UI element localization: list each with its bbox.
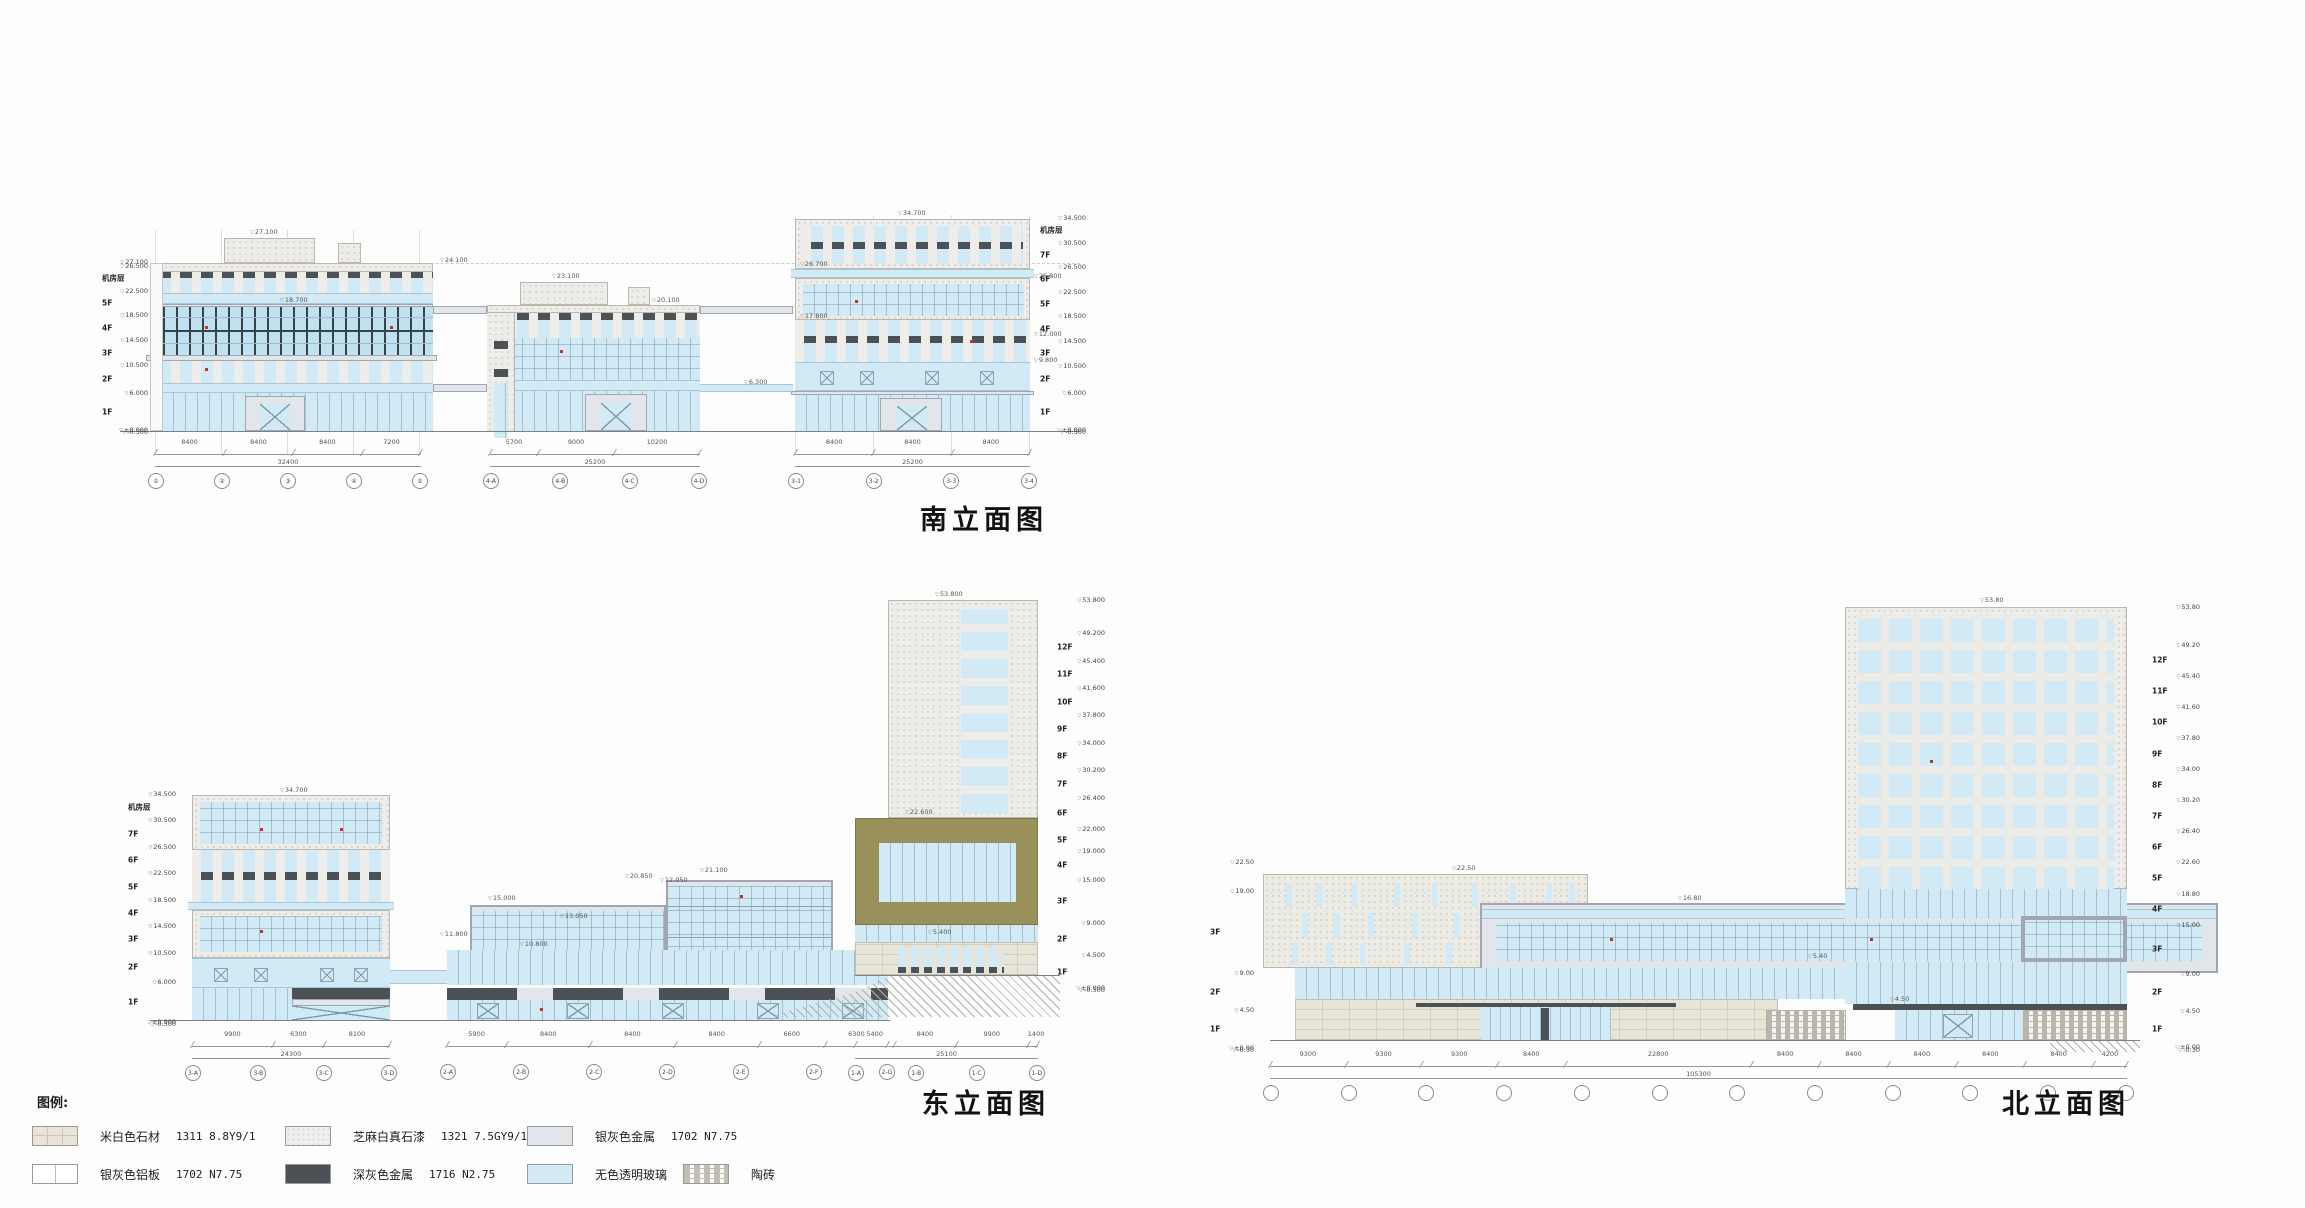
dim-segment: 1400 (1028, 1038, 1038, 1046)
level-annotation: 13.050 (560, 912, 588, 920)
north-tower-window-grid (1858, 614, 2114, 890)
material-name: 银灰色金属 (595, 1128, 655, 1145)
level-annotation: 20.100 (652, 296, 680, 304)
material-swatch (683, 1164, 729, 1184)
south-blockB-upper-band (487, 320, 700, 338)
ruler-row: -0.300 (1055, 988, 1105, 990)
grid-bubble (1729, 1085, 1745, 1101)
ruler-row: 1F±0.000 (100, 393, 148, 430)
east-tower-feature-frame (855, 818, 1038, 925)
grid-bubble (1962, 1085, 1978, 1101)
ruler-row: 7F26.40 (2150, 800, 2200, 831)
red-marker (260, 930, 263, 933)
level-annotation: 23.100 (552, 272, 580, 280)
north-1F-base (1295, 999, 1778, 1040)
grid-bubble (1574, 1085, 1590, 1101)
south-blockA-2F-band (150, 361, 433, 383)
ground-line (150, 1020, 890, 1021)
dim-total: 24300 (192, 1050, 390, 1058)
east-midblock-2F-band (447, 950, 888, 985)
material-name: 米白色石材 (100, 1128, 160, 1145)
grid-bubble: 1-C (969, 1065, 985, 1081)
dim-total: 25100 (855, 1050, 1038, 1058)
material-code: 1702 N7.75 (176, 1168, 242, 1181)
south-blockA-roofbox (338, 243, 361, 263)
material-name: 银灰色铝板 (100, 1166, 160, 1183)
east-tower-feature-glass (879, 843, 1016, 902)
ruler-row: 1F±0.00 (2150, 1011, 2200, 1048)
ruler-row: -0.30 (1208, 1048, 1254, 1050)
grid-bubble: ⑤ (412, 473, 428, 489)
material-swatch (527, 1164, 573, 1184)
grid-bubble (1885, 1085, 1901, 1101)
dim-segment: 8400 (1819, 1058, 1887, 1066)
grid-bubble: ④ (346, 473, 362, 489)
ruler-row: 6F22.000 (1055, 798, 1105, 830)
level-annotation: 34.700 (280, 786, 308, 794)
ruler-row: 6F22.500 (126, 847, 176, 873)
north-tower-4F-band (1845, 889, 2127, 919)
south-blockA-entrance-portal (245, 396, 305, 431)
dim-segment: 4200 (2093, 1058, 2127, 1066)
ruler-row: 3F10.500 (1038, 341, 1086, 366)
legend-item: 无色透明玻璃 (527, 1164, 683, 1184)
legend-item: 芝麻白真石漆 1321 7.5GY9/1 (285, 1126, 527, 1146)
material-code: 1716 N2.75 (429, 1168, 495, 1181)
south-blockC-window-head-band (795, 336, 1030, 343)
red-marker (390, 326, 393, 329)
south-blockB-spandrel (487, 380, 700, 391)
ruler-row: 2F4.50 (2150, 974, 2200, 1011)
west-elevation: 53.80049.20012F45.40011F41.60010F37.8009… (1190, 0, 2305, 560)
level-annotation: 53.80 (1980, 596, 2003, 604)
level-annotation: 27.100 (250, 228, 278, 236)
south-blockA-parapet (150, 263, 433, 272)
south-blockA-curtain-wall (150, 307, 433, 355)
grid-bubble (1263, 1085, 1279, 1101)
ruler-row: 7F26.400 (1055, 770, 1105, 797)
red-marker (970, 340, 973, 343)
level-annotation: 26.700 (800, 260, 828, 268)
dim-segment: 6300 (273, 1038, 324, 1046)
ruler-row: 2F6.000 (1038, 366, 1086, 394)
level-annotation: 18.700 (280, 296, 308, 304)
material-swatch (285, 1164, 331, 1184)
south-blockB-window-head-band (487, 313, 700, 320)
dim-segment: 8400 (675, 1038, 759, 1046)
east-link-band (390, 970, 447, 984)
south-blockB-stone-pier (487, 313, 515, 431)
tower-ground-line (855, 975, 1060, 976)
east-tower-facade (888, 600, 1038, 818)
ruler-row: 12F45.40 (2150, 645, 2200, 676)
material-code: 1321 7.5GY9/1 (441, 1130, 527, 1143)
ruler-row: 4F14.500 (100, 315, 148, 340)
elevation-sheet: 27.100 24.100 23.100 20.100 18.700 34.70… (0, 0, 2305, 1208)
dim-segment: 8400 (1751, 1058, 1819, 1066)
link-bridge (700, 306, 793, 314)
south-blockA-spandrel (150, 383, 433, 393)
material-swatch (32, 1164, 78, 1184)
ruler-row: 机房层22.500 (100, 266, 148, 291)
material-name: 无色透明玻璃 (595, 1166, 667, 1183)
grid-bubble: ① (148, 473, 164, 489)
dim-segment: 8400 (224, 446, 293, 454)
south-blockA-roofbox (224, 238, 315, 263)
ruler-row: 2F4.500 (1055, 923, 1105, 955)
dim-segment: 9900 (192, 1038, 273, 1046)
ruler-row: 3F9.00 (2150, 925, 2200, 974)
red-marker (855, 300, 858, 303)
material-swatch (527, 1126, 573, 1146)
level-annotation: 22.50 (1452, 864, 1475, 872)
ruler-row: 机房层30.500 (1038, 218, 1086, 243)
ruler-row: 6F22.60 (2150, 831, 2200, 862)
grid-bubble (1652, 1085, 1668, 1101)
ruler-row: -0.300 (126, 1022, 176, 1024)
level-annotation: 10.800 (520, 940, 548, 948)
north-title: 北立面图 (2002, 1082, 2130, 1121)
east-leftblock-1F-right (292, 988, 390, 1020)
east-midblock-1F-header (447, 988, 888, 1000)
ruler-row: 4F15.00 (2150, 894, 2200, 925)
dim-segment: 8400 (155, 446, 224, 454)
east-dim-group-1: 990063008100 24300 3-A3-B3-C3-D (192, 1038, 390, 1081)
ruler-row: 4F14.500 (126, 900, 176, 926)
grid-bubble: 3-4 (1021, 473, 1037, 489)
north-tao-brick-panel (2023, 1010, 2127, 1040)
red-marker (340, 828, 343, 831)
grid-bubble: 2-F (806, 1064, 822, 1080)
link-bridge (433, 384, 487, 392)
south-blockC-mid-frame (795, 278, 1030, 320)
ruler-row: 9F34.00 (2150, 738, 2200, 769)
grid-bubble: 3-1 (788, 473, 804, 489)
ruler-row: 11F41.60 (2150, 676, 2200, 707)
ruler-row: 2F4.50 (1208, 973, 1254, 1010)
south-blockB-entrance-portal (585, 394, 647, 431)
south-blockB-glass-field (487, 338, 700, 380)
ruler-row: 2F6.000 (126, 953, 176, 983)
grid-bubble: 4-D (691, 473, 707, 489)
dim-segment: 9300 (1270, 1058, 1346, 1066)
north-right-ruler: 53.8049.2012F45.4011F41.6010F37.809F34.0… (2150, 607, 2200, 1050)
grid-bubble: 4-A (483, 473, 499, 489)
north-dim-group: 9300930093008400228008400840084008400840… (1270, 1058, 2127, 1101)
ruler-row: 3F10.500 (126, 926, 176, 952)
ruler-row: 8F30.200 (1055, 743, 1105, 770)
ruler-row: 7F26.500 (1038, 243, 1086, 268)
grid-bubble: 3-C (316, 1065, 332, 1081)
south-dim-group-1: 8400840084007200 32400 ①②③④⑤ (155, 446, 421, 489)
level-annotation: 16.80 (1678, 894, 1701, 902)
entrance-door (601, 403, 631, 430)
ruler-row: 5F18.500 (100, 291, 148, 316)
south-blockC-top-frame (795, 219, 1030, 269)
dim-segment: 5700 (490, 446, 538, 454)
dim-segment: 9000 (538, 446, 614, 454)
dim-segment: 6600 (759, 1038, 825, 1046)
ruler-row: 1F±0.000 (1038, 393, 1086, 430)
south-right-ruler: 34.500机房层30.5007F26.5006F22.5005F18.5004… (1038, 218, 1086, 432)
south-blockC-2F-band (795, 362, 1030, 391)
red-marker (1870, 938, 1873, 941)
level-annotation: 22.600 (905, 808, 933, 816)
south-blockB-roofbox (520, 282, 608, 305)
south-blockB-parapet (487, 305, 700, 313)
south-dim-group-2: 5700900010200 25200 4-A4-B4-C4-D (490, 446, 700, 489)
grid-bubble: 2-E (733, 1064, 749, 1080)
dim-total: 105300 (1270, 1070, 2127, 1078)
grid-bubble: 2-D (659, 1064, 675, 1080)
ruler-row: 3F10.500 (100, 340, 148, 365)
material-swatch (285, 1126, 331, 1146)
dim-segment: 8400 (952, 446, 1030, 454)
dim-segment: 9300 (1346, 1058, 1422, 1066)
north-tower-entry-glass (1895, 1010, 2023, 1040)
ruler-row: 3F9.00 (1208, 891, 1254, 973)
material-name: 深灰色金属 (353, 1166, 413, 1183)
east-dim-group-2: 590084008400840066006300 2-A2-B2-C2-D2-E… (447, 1038, 888, 1080)
level-annotation: 17.800 (800, 312, 828, 320)
ruler-row: 9F34.000 (1055, 715, 1105, 742)
entrance-door (897, 406, 927, 430)
grid-bubble: 2-B (513, 1064, 529, 1080)
ruler-row: 1F±0.000 (126, 982, 176, 1022)
red-marker (540, 1008, 543, 1011)
legend-row-1: 米白色石材 1311 8.8Y9/1 芝麻白真石漆 1321 7.5GY9/1 … (32, 1126, 737, 1146)
grid-bubble: 1-B (908, 1065, 924, 1081)
dim-total: 32400 (155, 458, 421, 466)
grid-bubble: ② (214, 473, 230, 489)
dim-segment: 5400 (855, 1038, 894, 1046)
ruler-row: -0.300 (100, 430, 148, 432)
level-annotation: 4.50 (1890, 995, 1909, 1003)
east-leftblock-window-heads (192, 872, 390, 880)
red-marker (205, 368, 208, 371)
east-title: 东立面图 (922, 1082, 1050, 1121)
east-dim-group-3: 5400840099001400 25100 1-A1-B1-C1-D (855, 1038, 1038, 1081)
ruler-row: 10F37.800 (1055, 688, 1105, 715)
dim-segment: 7200 (362, 446, 421, 454)
legend-item: 米白色石材 1311 8.8Y9/1 (32, 1126, 285, 1146)
dim-segment: 8400 (1956, 1058, 2024, 1066)
level-annotation: 6.300 (744, 378, 767, 386)
ruler-row: -0.30 (2150, 1047, 2200, 1049)
legend-item: 陶砖 (683, 1164, 791, 1184)
level-annotation: 53.800 (935, 590, 963, 598)
level-annotation: 12.050 (660, 876, 688, 884)
north-tower-2F-band (1845, 962, 2127, 1004)
material-code: 1311 8.8Y9/1 (176, 1130, 255, 1143)
level-annotation: 15.000 (488, 894, 516, 902)
ruler-row: 19.00 (1208, 862, 1254, 891)
dim-segment: 8400 (894, 1038, 955, 1046)
east-leftblock-top-frame (192, 795, 390, 850)
east-tower-windows (961, 609, 1008, 813)
north-tao-brick-panel (1766, 1010, 1846, 1040)
grid-bubble: 4-B (552, 473, 568, 489)
ruler-row: 12F45.400 (1055, 633, 1105, 660)
dim-segment: 8400 (506, 1038, 590, 1046)
grid-bubble: 1-A (848, 1065, 864, 1081)
east-left-ruler: 34.500机房层30.5007F26.5006F22.5005F18.5004… (126, 794, 176, 1024)
ground-line (1270, 1040, 2140, 1041)
material-name: 陶砖 (751, 1166, 775, 1183)
east-elevation: 34.700 21.100 20.850 15.000 13.050 10.80… (0, 560, 1160, 1160)
grid-bubble: ③ (280, 473, 296, 489)
legend-item: 银灰色金属 1702 N7.75 (527, 1126, 737, 1146)
grid-bubble: 3-A (185, 1065, 201, 1081)
east-leftblock-2F-band (192, 958, 390, 988)
link-bridge (433, 306, 487, 314)
south-elevation: 27.100 24.100 23.100 20.100 18.700 34.70… (0, 0, 1100, 560)
level-annotation: 5.40 (1808, 952, 1827, 960)
material-swatch (32, 1126, 78, 1146)
north-elevation: 22.50 16.80 5.40 4.50 53.80 22.5019.003F… (1190, 560, 2305, 1160)
ruler-row: 1F±0.00 (1208, 1010, 1254, 1047)
dim-segment: 5900 (447, 1038, 506, 1046)
south-dim-group-3: 840084008400 25200 3-13-23-33-4 (795, 446, 1030, 489)
south-blockA-machine-band (150, 278, 433, 293)
ruler-row: 3F9.000 (1055, 880, 1105, 923)
level-annotation: 34.700 (898, 209, 926, 217)
legend-row-2: 银灰色铝板 1702 N7.75 深灰色金属 1716 N2.75 无色透明玻璃… (32, 1164, 791, 1184)
east-leftblock-storefront (192, 988, 292, 1020)
grid-bubble (1341, 1085, 1357, 1101)
grid-bubble (1418, 1085, 1434, 1101)
north-left-ruler: 22.5019.003F9.002F4.501F±0.00-0.30 (1208, 862, 1254, 1050)
ruler-row: 5F18.80 (2150, 862, 2200, 893)
level-annotation: 11.800 (440, 930, 468, 938)
grid-bubble: 2-A (440, 1064, 456, 1080)
level-annotation: 24.100 (440, 256, 468, 264)
level-annotation: 20.850 (625, 872, 653, 880)
material-code: 1702 N7.75 (671, 1130, 737, 1143)
dim-segment: 8400 (795, 446, 873, 454)
entrance-door (260, 404, 290, 430)
red-marker (1930, 760, 1933, 763)
ruler-row: 2F6.000 (100, 365, 148, 393)
dim-total: 25200 (795, 458, 1030, 466)
ruler-row: 10F37.80 (2150, 707, 2200, 738)
ground-line (120, 431, 1080, 432)
dim-segment: 8400 (2024, 1058, 2092, 1066)
south-blockC-entrance-portal (880, 398, 942, 431)
south-title: 南立面图 (920, 498, 1048, 537)
south-blockA-alum-corner (150, 263, 163, 431)
ruler-row: 5F18.500 (1038, 292, 1086, 317)
north-tower-facade (1845, 607, 2127, 889)
east-leftblock-ledge (188, 902, 394, 910)
dim-total: 25200 (490, 458, 700, 466)
legend-item: 银灰色铝板 1702 N7.75 (32, 1164, 285, 1184)
south-blockC-ledge (791, 269, 1034, 278)
east-tower-stone-base (855, 942, 1038, 975)
red-marker (1610, 938, 1613, 941)
dim-segment: 10200 (614, 446, 700, 454)
grid-bubble: 3-B (250, 1065, 266, 1081)
east-leftblock-lower-frame (192, 910, 390, 958)
grid-bubble: 3-2 (866, 473, 882, 489)
ruler-row: 49.200 (1055, 600, 1105, 633)
dim-segment: 8400 (873, 446, 951, 454)
south-blockB-roofbox (628, 287, 650, 305)
legend-item: 深灰色金属 1716 N2.75 (285, 1164, 527, 1184)
ruler-row: 8F30.20 (2150, 769, 2200, 800)
level-annotation: 21.100 (700, 866, 728, 874)
level-annotation: 5.400 (928, 928, 951, 936)
dim-segment: 22800 (1565, 1058, 1751, 1066)
ruler-row: 7F26.500 (126, 820, 176, 846)
dim-segment: 9900 (956, 1038, 1028, 1046)
ruler-row: 5F18.500 (126, 873, 176, 899)
east-right-ruler: 53.80049.20012F45.40011F41.60010F37.8009… (1055, 600, 1105, 990)
dim-segment: 8400 (1888, 1058, 1956, 1066)
dim-segment: 8400 (590, 1038, 674, 1046)
legend-label: 图例: (37, 1092, 68, 1111)
grid-bubble (1807, 1085, 1823, 1101)
grid-bubble: 3-D (381, 1065, 397, 1081)
grid-bubble: 3-3 (943, 473, 959, 489)
dim-segment: 8400 (293, 446, 362, 454)
dim-segment: 8100 (324, 1038, 390, 1046)
grid-bubble (1496, 1085, 1512, 1101)
north-3F-frame-box (2021, 916, 2127, 962)
ruler-row: 6F22.500 (1038, 267, 1086, 292)
dim-segment: 9300 (1421, 1058, 1497, 1066)
ruler-row: 1F±0.000 (1055, 955, 1105, 987)
dim-segment: 8400 (1497, 1058, 1565, 1066)
ruler-row: 4F14.500 (1038, 316, 1086, 341)
ruler-row: 49.20 (2150, 607, 2200, 645)
grid-bubble: 2-C (586, 1064, 602, 1080)
ruler-row: 机房层30.500 (126, 794, 176, 820)
red-marker (560, 350, 563, 353)
south-left-ruler: 27.10026.500机房层22.5005F18.5004F14.5003F1… (100, 262, 148, 432)
ruler-row: 5F19.000 (1055, 829, 1105, 851)
red-marker (260, 828, 263, 831)
ruler-row: 4F15.000 (1055, 851, 1105, 880)
red-marker (205, 326, 208, 329)
grid-bubble: 1-D (1029, 1065, 1045, 1081)
material-name: 芝麻白真石漆 (353, 1128, 425, 1145)
grid-bubble: 4-C (622, 473, 638, 489)
ruler-row: -0.300 (1038, 430, 1086, 432)
red-marker (740, 895, 743, 898)
ruler-row: 11F41.600 (1055, 661, 1105, 688)
